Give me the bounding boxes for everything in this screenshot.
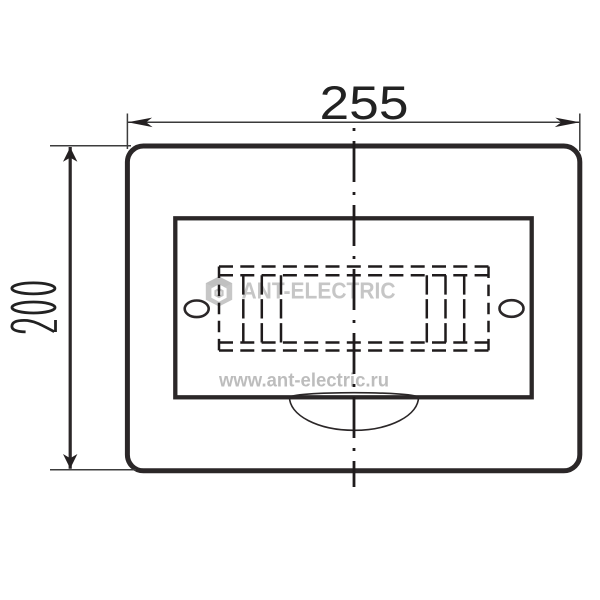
svg-text:ANT-ELECTRIC: ANT-ELECTRIC xyxy=(242,278,396,304)
svg-text:www.ant-electric.ru: www.ant-electric.ru xyxy=(218,370,389,392)
svg-text:255: 255 xyxy=(320,76,409,129)
